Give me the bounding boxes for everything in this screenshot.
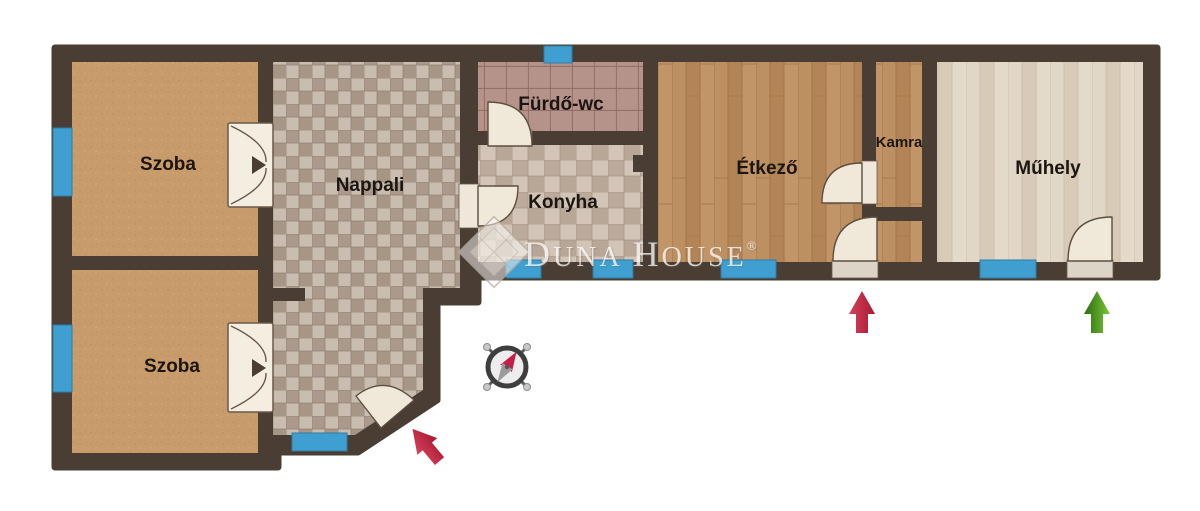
double-door-szoba-top xyxy=(228,123,273,207)
entrance-arrow-nappali xyxy=(403,421,450,470)
room-label-szoba-bottom: Szoba xyxy=(144,356,200,377)
door-leaf-konyha xyxy=(459,184,479,228)
floor-plan-page: Szoba Szoba Nappali Fürdő-wc Konyha Étke… xyxy=(0,0,1200,511)
room-label-konyha: Konyha xyxy=(528,192,598,213)
compass-icon xyxy=(484,344,531,391)
window-furdo-wc xyxy=(544,46,572,63)
double-door-szoba-bottom xyxy=(228,323,273,412)
room-label-furdo-wc: Fürdő-wc xyxy=(518,94,604,115)
window-muhely xyxy=(980,260,1036,278)
room-label-szoba-top: Szoba xyxy=(140,154,196,175)
room-label-muhely: Műhely xyxy=(1015,158,1081,179)
floor-plan: Szoba Szoba Nappali Fürdő-wc Konyha Étke… xyxy=(0,0,1200,511)
entrance-arrow-muhely xyxy=(1084,291,1110,333)
window-nappali xyxy=(292,433,347,451)
door-leaf-etkezo-entrance xyxy=(832,260,878,278)
room-label-kamra: Kamra xyxy=(876,134,923,151)
wall-pillar xyxy=(633,155,658,172)
room-label-nappali: Nappali xyxy=(336,175,405,196)
window-szoba-bottom xyxy=(53,325,72,392)
door-leaf-kamra xyxy=(861,161,877,204)
room-label-etkezo: Étkező xyxy=(736,157,797,179)
entrance-arrow-etkezo xyxy=(849,291,875,333)
window-szoba-top xyxy=(53,128,72,196)
door-leaf-muhely-entrance xyxy=(1067,260,1113,278)
wall-stub xyxy=(273,288,305,301)
